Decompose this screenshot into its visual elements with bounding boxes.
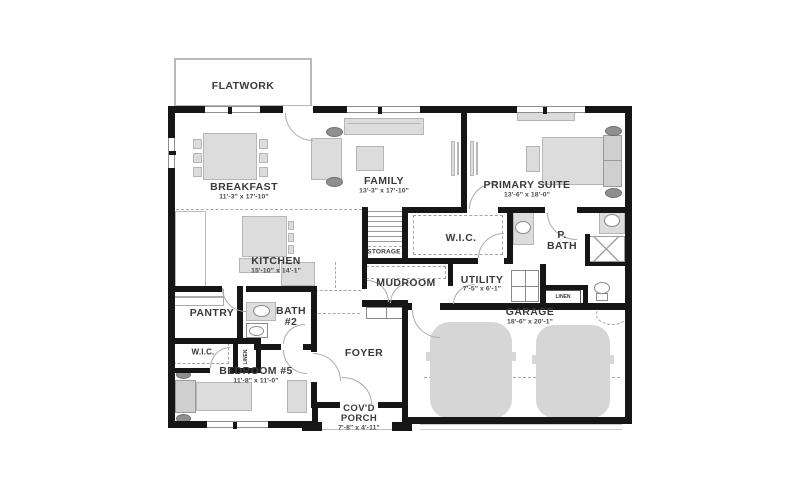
car-mirror (426, 352, 431, 361)
wall (540, 285, 588, 290)
wall (168, 286, 222, 292)
coffee-table (356, 146, 384, 171)
headboard (603, 135, 622, 187)
wall (311, 286, 317, 352)
toilet (594, 282, 610, 294)
window (207, 421, 268, 428)
dining-chair (259, 139, 268, 149)
nightstand (605, 126, 622, 136)
dining-chair (193, 153, 202, 163)
room-label-family: FAMILY (364, 175, 404, 187)
media-console (457, 142, 459, 175)
porch-post (302, 422, 322, 431)
room-label-utility: UTILITY (461, 274, 503, 286)
stair-break-line (368, 246, 402, 247)
car-mirror (609, 355, 614, 364)
room-label-garage: GARAGE (506, 306, 555, 318)
room-dims-utility: 7'-5" x 6'-1" (463, 286, 501, 293)
toilet-bowl (249, 326, 264, 336)
sink (253, 305, 270, 317)
hall-break-line (315, 290, 361, 291)
wall (498, 207, 545, 213)
foyer-niche-line (318, 313, 360, 314)
side-table (326, 177, 343, 187)
media-console (470, 141, 474, 176)
window (517, 106, 585, 113)
bed (196, 382, 252, 411)
window (347, 106, 420, 113)
door-arc (313, 353, 341, 381)
door-arc (342, 377, 372, 404)
bed (542, 137, 604, 185)
dining-chair (259, 153, 268, 163)
wall (402, 207, 465, 213)
dining-chair (259, 167, 268, 177)
room-label-mudroom: MUDROOM (376, 277, 435, 289)
room-label-covered-porch: COV'D PORCH (332, 404, 386, 424)
wall (448, 264, 453, 286)
wall (404, 417, 632, 424)
bench (526, 146, 540, 172)
wall (362, 258, 478, 264)
car (430, 322, 512, 419)
media-console (451, 141, 455, 176)
porch-post (392, 422, 412, 431)
dining-chair (193, 167, 202, 177)
breakfast-table (203, 133, 257, 180)
floor-plan: FLATWORK BREAKFAST 11'-3" x 17'-10" FAMI… (0, 0, 800, 500)
bar-stool (288, 245, 294, 254)
shower (588, 236, 625, 262)
armchair (311, 138, 342, 180)
counter (175, 211, 206, 288)
sink (515, 221, 531, 234)
wall (504, 258, 513, 264)
wall (168, 368, 210, 373)
wall (461, 106, 467, 213)
car-mirror (532, 355, 537, 364)
room-label-breakfast: BREAKFAST (210, 181, 278, 193)
door-opening (283, 106, 313, 113)
pantry-shelf (172, 297, 224, 306)
door-arc (285, 113, 313, 141)
driveway-apron (420, 429, 622, 430)
ceiling-break-line (176, 209, 362, 210)
room-dims-kitchen: 15'-10" x 14'-1" (251, 268, 301, 275)
room-label-primary-suite: PRIMARY SUITE (484, 179, 571, 191)
room-label-flatwork: FLATWORK (212, 80, 275, 92)
room-label-bedroom-5: BEDROOM #5 (219, 365, 292, 377)
stairs (368, 211, 402, 244)
sofa-back-line (347, 123, 421, 124)
dining-chair (193, 139, 202, 149)
door-arc (412, 310, 440, 338)
wall (577, 207, 632, 213)
toilet-tank (596, 293, 608, 301)
room-dims-breakfast: 11'-3" x 17'-10" (219, 194, 268, 201)
pillow-divider (604, 160, 621, 161)
wall (246, 286, 317, 292)
washer-dryer-divider (525, 270, 526, 302)
headboard (175, 380, 196, 413)
wall (507, 207, 513, 264)
room-label-pantry: PANTRY (190, 307, 234, 319)
kitchen-island (242, 216, 287, 257)
room-label-storage: STORAGE (367, 249, 400, 256)
driveway-apron (420, 424, 622, 425)
car-mirror (511, 352, 516, 361)
room-dims-family: 13'-3" x 17'-10" (359, 188, 409, 195)
room-dims-bedroom-5: 11'-8" x 11'-0" (233, 378, 278, 385)
room-dims-primary-suite: 13'-6" x 18'-0" (504, 192, 550, 199)
room-label-kitchen: KITCHEN (251, 255, 300, 267)
room-dims-covered-porch: 7'-8" x 4'-11" (338, 425, 380, 432)
coat-closet-divider (386, 307, 387, 319)
sink (604, 214, 620, 227)
sofa (344, 118, 424, 135)
side-table (326, 127, 343, 137)
room-label-bath-2: BATH #2 (271, 306, 311, 328)
room-label-linen-hall: LINEN (556, 294, 571, 300)
room-dims-garage: 18'-6" x 20'-1" (507, 319, 553, 326)
media-console (476, 142, 478, 175)
bar-stool (288, 221, 294, 230)
wall (402, 207, 408, 263)
hall-break-line (335, 262, 336, 288)
window (205, 106, 260, 113)
dresser (287, 380, 307, 413)
wall (583, 285, 588, 305)
room-label-wic-primary: W.I.C. (446, 232, 477, 244)
bar-stool (288, 233, 294, 242)
room-label-foyer: FOYER (345, 347, 383, 359)
wall (585, 262, 631, 266)
room-label-primary-bath: P. BATH (545, 230, 579, 252)
nightstand (605, 188, 622, 198)
car (536, 325, 610, 418)
room-label-linen-bedroom5: LINEN (243, 350, 249, 365)
room-label-wic-bedroom5: W.I.C. (192, 348, 215, 357)
wall (168, 338, 260, 344)
window (168, 138, 175, 168)
